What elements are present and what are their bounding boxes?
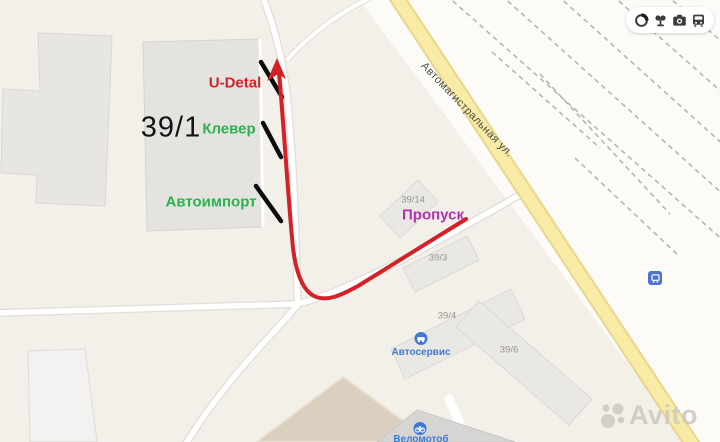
transit-stop-icon[interactable]: [648, 271, 662, 285]
avito-logo-dots: [599, 399, 627, 431]
annotation-propusk: Пропуск: [402, 208, 464, 223]
velomoto-poi-label: Веломотоб: [393, 435, 448, 442]
annotation-klever: Клевер: [202, 122, 255, 137]
panoramas-icon[interactable]: [652, 12, 669, 29]
annotation-avtoimport: Автоимпорт: [165, 195, 256, 210]
building-northwest: [1, 33, 112, 206]
annotation-39-1: 39/1: [141, 114, 201, 143]
building-39-3: [403, 236, 479, 292]
map-layers: [0, 0, 720, 442]
map-control-bar: [626, 7, 714, 33]
avito-wordmark: Avito: [629, 400, 698, 431]
annotation-u-detal: U-Detal: [209, 76, 262, 91]
autoservice-poi-label: Автосервис: [391, 348, 450, 358]
transit-bus-icon[interactable]: [690, 12, 707, 29]
map-canvas[interactable]: Автомагистральная ул. U-Detal 39/1 Клеве…: [0, 0, 720, 442]
building-southwest: [28, 349, 97, 442]
avito-watermark: Avito: [599, 399, 698, 431]
camera-icon[interactable]: [671, 12, 688, 29]
building-label-39-4: 39/4: [438, 311, 457, 321]
traffic-circle-icon[interactable]: [633, 12, 650, 29]
building-label-39-3: 39/3: [429, 253, 448, 263]
building-label-39-6: 39/6: [500, 345, 519, 355]
building-label-39-14: 39/14: [401, 195, 425, 205]
